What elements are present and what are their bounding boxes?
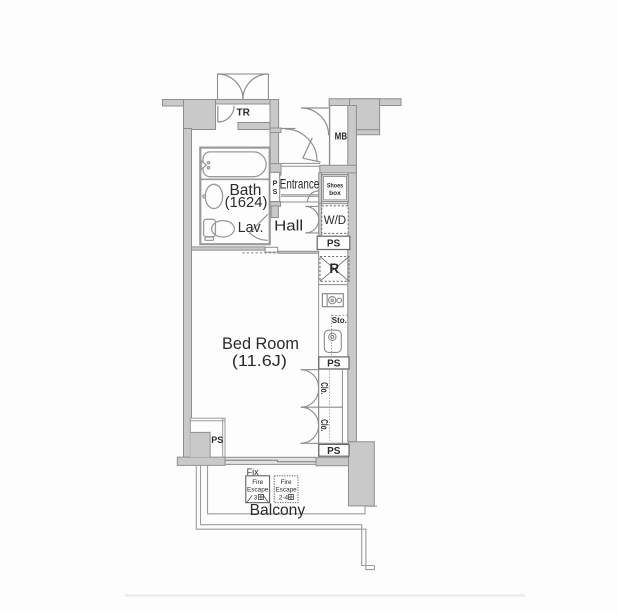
- svg-text:(11.6J): (11.6J): [232, 353, 287, 370]
- svg-text:Balcony: Balcony: [250, 502, 306, 519]
- svg-text:(1624): (1624): [225, 195, 268, 211]
- svg-text:Fire: Fire: [252, 479, 263, 486]
- svg-text:Entrance: Entrance: [280, 176, 320, 192]
- svg-text:PS: PS: [327, 446, 341, 457]
- svg-text:Clo.: Clo.: [318, 419, 329, 431]
- svg-text:Escape: Escape: [247, 487, 269, 494]
- svg-text:PS: PS: [327, 239, 341, 250]
- svg-text:Bed Room: Bed Room: [222, 335, 299, 353]
- svg-text:MB: MB: [335, 131, 348, 142]
- svg-text:PS: PS: [327, 359, 341, 370]
- svg-text:TR: TR: [237, 107, 251, 118]
- svg-text:Fix: Fix: [247, 467, 259, 477]
- svg-text:P: P: [273, 180, 278, 187]
- svg-text:R: R: [329, 261, 339, 276]
- svg-text:Escape: Escape: [275, 487, 297, 494]
- svg-text:Fire: Fire: [281, 479, 292, 486]
- svg-text:S: S: [273, 189, 278, 196]
- svg-text:Hall: Hall: [274, 219, 303, 235]
- svg-text:Clo.: Clo.: [318, 382, 329, 394]
- svg-text:W/D: W/D: [324, 215, 346, 227]
- svg-text:Sto.: Sto.: [332, 316, 347, 325]
- svg-text:3: 3: [254, 495, 258, 502]
- svg-text:Shoes: Shoes: [327, 182, 343, 189]
- svg-text:PS: PS: [211, 435, 223, 445]
- svg-text:2-4: 2-4: [279, 495, 289, 502]
- svg-text:box: box: [329, 190, 341, 197]
- svg-text:Lav.: Lav.: [238, 219, 264, 236]
